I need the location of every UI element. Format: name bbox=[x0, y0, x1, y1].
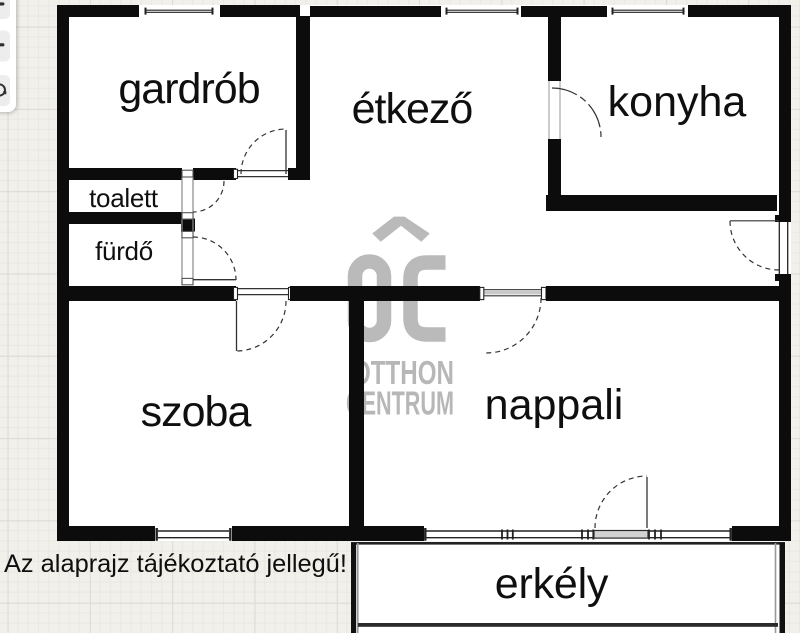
svg-text:konyha: konyha bbox=[608, 78, 747, 126]
svg-text:nappali: nappali bbox=[485, 381, 624, 429]
svg-text:étkező: étkező bbox=[352, 85, 473, 133]
svg-text:szoba: szoba bbox=[141, 388, 252, 436]
svg-text:Az alaprajz tájékoztató jelleg: Az alaprajz tájékoztató jellegű! bbox=[4, 550, 347, 578]
svg-text:erkély: erkély bbox=[495, 560, 609, 608]
svg-text:gardrób: gardrób bbox=[118, 65, 259, 113]
svg-text:toalett: toalett bbox=[89, 183, 159, 213]
svg-text:fürdő: fürdő bbox=[95, 236, 153, 266]
